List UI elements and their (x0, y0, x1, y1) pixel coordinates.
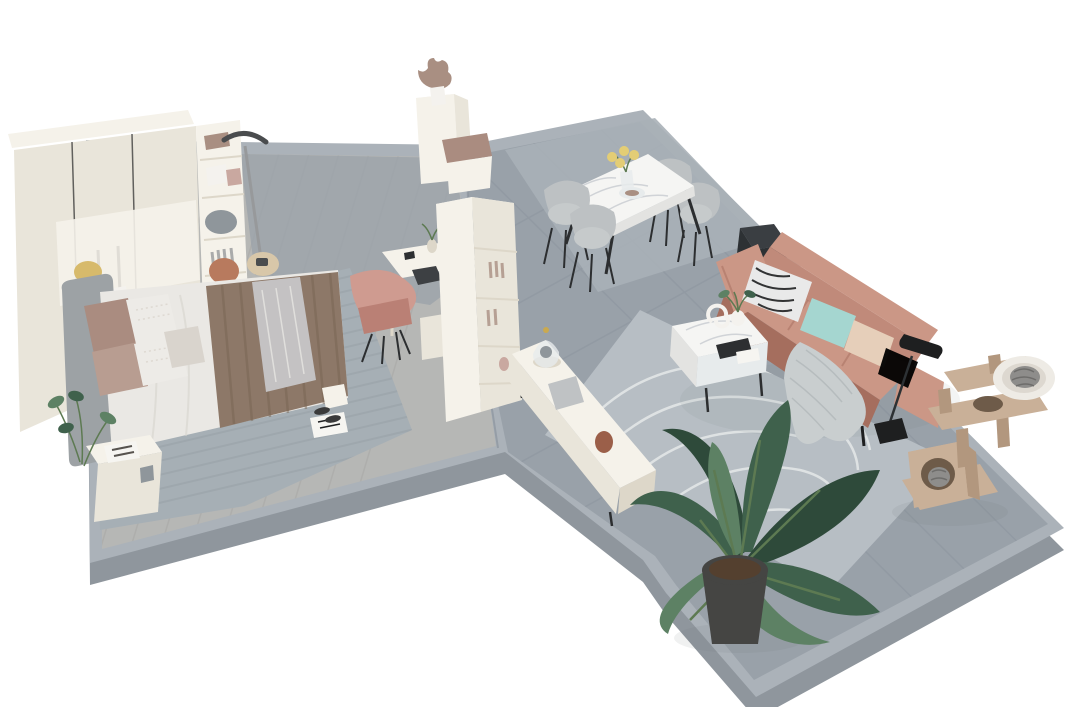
knit-basket (205, 210, 237, 234)
cube-handle-slot (140, 465, 154, 483)
bedside-cube-table (86, 435, 162, 522)
plate-food (625, 190, 639, 196)
chair-seat (574, 227, 610, 249)
bookshelf-room-divider (436, 197, 522, 422)
console-vase (595, 431, 613, 453)
cloche-ornament (540, 346, 552, 358)
platform-hole (973, 396, 1003, 412)
flower-vase (430, 86, 446, 106)
cloche-finial (543, 327, 549, 333)
coffee-vase (731, 310, 745, 326)
shelf-vase (499, 357, 509, 371)
steamer-display (256, 258, 268, 266)
desk-vase (427, 239, 437, 253)
render-canvas (0, 0, 1083, 707)
table-vase (620, 170, 634, 190)
dried-flowers (418, 58, 452, 89)
plant-soil (709, 558, 761, 580)
entry-bench (442, 133, 492, 194)
post (938, 388, 952, 414)
apartment-render (0, 0, 1083, 707)
post (956, 428, 970, 468)
decor-box-pink (226, 168, 242, 186)
